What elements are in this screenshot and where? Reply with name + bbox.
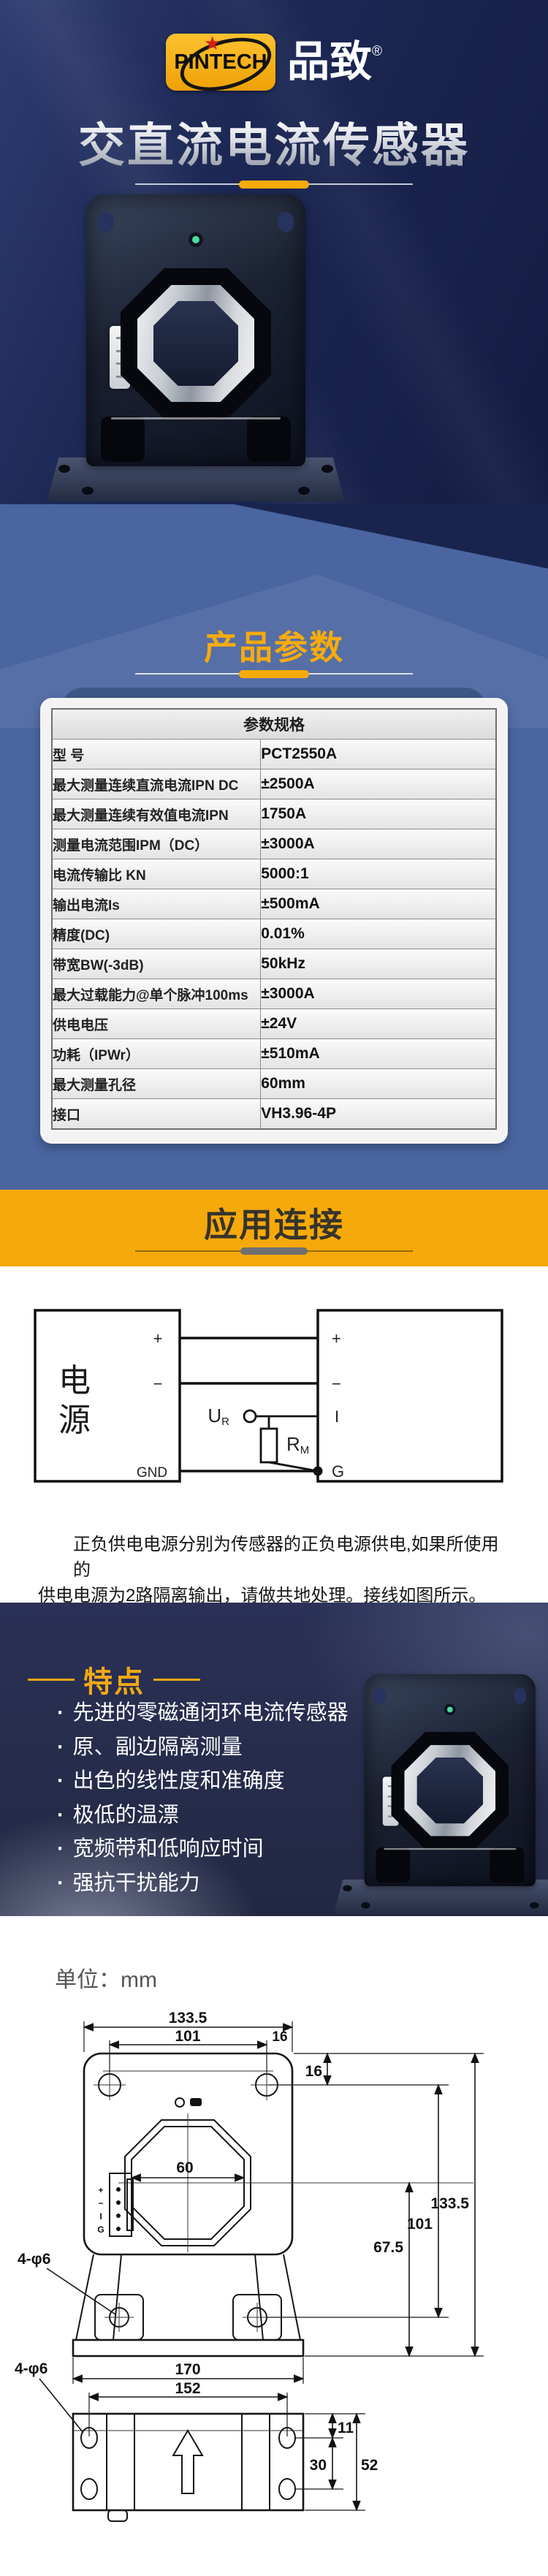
table-row: 功耗（IPWr）±510mA xyxy=(52,1039,496,1069)
page-title: 交直流电流传感器 xyxy=(0,108,548,175)
table-row: 供电电压±24V xyxy=(52,1009,496,1039)
dim-hole-spacing-h: 101 xyxy=(175,2028,200,2045)
dimension-drawing: 60 + − I G xyxy=(0,2010,548,2528)
svg-text:I: I xyxy=(99,2211,102,2222)
dim-holes-label-front: 4-φ6 xyxy=(18,2251,50,2268)
pintech-logo: ★ PINTECH xyxy=(166,34,275,91)
dim-aperture: 60 xyxy=(176,2159,193,2176)
front-view: 60 + − I G xyxy=(73,2053,473,2356)
sensor-led xyxy=(189,232,203,247)
brand-name-cn: 品致® xyxy=(287,41,382,83)
connection-banner: 应用连接 xyxy=(0,1190,548,1266)
features-section: 特点 先进的零磁通闭环电流传感器 原、副边隔离测量 出色的线性度和准确度 极低的… xyxy=(0,1603,548,1916)
params-section: 产品参数 参数规格 型 号PCT2550A 最大测量连续直流电流IPN DC±2… xyxy=(0,504,548,1190)
source-terminal-plus: + xyxy=(153,1329,163,1348)
table-row: 输出电流Is±500mA xyxy=(52,889,496,919)
connection-title: 应用连接 xyxy=(0,1198,548,1247)
table-row: 最大测量连续直流电流IPN DC±2500A xyxy=(52,770,496,799)
table-row: 最大测量连续有效值电流IPN1750A xyxy=(52,799,496,829)
table-row: 精度(DC)0.01% xyxy=(52,919,496,949)
resistor-rm xyxy=(261,1429,277,1462)
feature-item: 强抗干扰能力 xyxy=(57,1866,349,1901)
bottom-view: 170 152 11 xyxy=(15,2357,378,2521)
sensor-terminal-i: I xyxy=(335,1407,339,1426)
front-connector: + − I G xyxy=(97,2173,133,2236)
table-row: 接口VH3.96-4P xyxy=(52,1099,496,1130)
hero-section: ★ PINTECH 品致® 交直流电流传感器 xyxy=(0,0,548,504)
table-row: 最大测量孔径60mm xyxy=(52,1069,496,1099)
title-divider xyxy=(135,180,413,189)
dim-offset-top: 16 xyxy=(305,2063,322,2080)
unit-label: 单位：mm xyxy=(55,1961,157,1994)
features-list: 先进的零磁通闭环电流传感器 原、副边隔离测量 出色的线性度和准确度 极低的温漂 … xyxy=(57,1696,349,1900)
ur-terminal xyxy=(244,1410,256,1422)
connection-note: 正负供电电源分别为传感器的正负电源供电,如果所使用的 供电电源为2路隔离输出，请… xyxy=(38,1532,511,1608)
dim-depth: 52 xyxy=(361,2457,378,2474)
power-supply-label: 电源 xyxy=(58,1361,96,1440)
table-row: 电流传输比 KN5000:1 xyxy=(52,859,496,889)
feature-item: 先进的零磁通闭环电流传感器 xyxy=(57,1696,349,1730)
dim-offset-right: 16 xyxy=(272,2029,287,2045)
spec-card: 参数规格 型 号PCT2550A 最大测量连续直流电流IPN DC±2500A … xyxy=(40,698,508,1144)
feature-item: 宽频带和低响应时间 xyxy=(57,1832,349,1866)
registered-mark: ® xyxy=(372,44,382,59)
source-terminal-minus: − xyxy=(153,1375,163,1393)
features-header: 特点 xyxy=(28,1658,200,1701)
dim-holes-label-bottom: 4-φ6 xyxy=(15,2360,47,2377)
dim-hole-spacing-v: 101 xyxy=(407,2216,433,2233)
dimensions-section: 单位：mm 60 xyxy=(0,1916,548,2576)
feature-item: 极低的温漂 xyxy=(57,1798,349,1833)
led-mark xyxy=(175,2098,184,2107)
bg-wedge xyxy=(234,504,548,569)
sensor-slot xyxy=(247,417,291,462)
brand-header: ★ PINTECH 品致® xyxy=(0,34,548,91)
table-row: 型 号PCT2550A xyxy=(52,740,496,770)
dim-bottom-hole-spacing: 152 xyxy=(175,2380,200,2397)
params-divider xyxy=(135,669,413,678)
led-mark xyxy=(190,2098,202,2106)
bottom-tab xyxy=(108,2510,127,2521)
connection-divider xyxy=(135,1247,413,1255)
rm-label: RM xyxy=(286,1433,309,1456)
connection-section: + − GND + − I G UR RM 电源 正负供电电源分别为传感器的正负… xyxy=(0,1266,548,1603)
dim-hole-pitch: 30 xyxy=(310,2457,327,2474)
dim-total-width: 133.5 xyxy=(169,2010,208,2026)
wiring-diagram: + − GND + − I G UR RM 电源 xyxy=(22,1304,526,1487)
sensor-body xyxy=(86,194,305,466)
spec-table: 参数规格 型 号PCT2550A 最大测量连续直流电流IPN DC±2500A … xyxy=(51,708,497,1130)
sensor-slot xyxy=(101,417,145,462)
sensor-terminal-plus: + xyxy=(332,1329,341,1348)
features-title: 特点 xyxy=(83,1658,145,1701)
feature-item: 原、副边隔离测量 xyxy=(57,1730,349,1765)
table-row: 带宽BW(-3dB)50kHz xyxy=(52,949,496,979)
product-photo xyxy=(42,194,349,509)
ur-label: UR xyxy=(208,1405,229,1428)
feature-item: 出色的线性度和准确度 xyxy=(57,1764,349,1798)
sensor-terminal-g: G xyxy=(332,1462,344,1481)
svg-text:+: + xyxy=(98,2185,103,2195)
orientation-arrow xyxy=(173,2431,202,2493)
sensor-box xyxy=(318,1310,502,1481)
dim-edge-offset: 11 xyxy=(338,2420,354,2436)
svg-text:G: G xyxy=(97,2224,104,2235)
logo-text: PINTECH xyxy=(174,50,267,75)
ground-node xyxy=(313,1467,323,1476)
aperture-hole xyxy=(153,301,238,386)
table-row: 测量电流范围IPM（DC）±3000A xyxy=(52,829,496,859)
params-title: 产品参数 xyxy=(0,621,548,669)
mounting-hole xyxy=(98,212,114,232)
dim-total-height: 133.5 xyxy=(430,2195,469,2212)
wiring-diagram-svg: + − GND + − I G UR RM xyxy=(22,1304,526,1487)
product-detail-page: ★ PINTECH 品致® 交直流电流传感器 xyxy=(0,0,548,2576)
table-header-row: 参数规格 xyxy=(52,709,496,740)
table-row: 最大过载能力@单个脉冲100ms±3000A xyxy=(52,979,496,1009)
source-terminal-gnd: GND xyxy=(137,1465,167,1481)
mounting-hole xyxy=(278,212,294,232)
svg-text:−: − xyxy=(98,2198,103,2208)
dim-center-to-base: 67.5 xyxy=(373,2239,403,2256)
sensor-terminal-minus: − xyxy=(332,1375,341,1393)
product-photo-small xyxy=(330,1674,548,1916)
dim-bottom-total-width: 170 xyxy=(175,2361,200,2378)
table-header: 参数规格 xyxy=(52,709,496,740)
